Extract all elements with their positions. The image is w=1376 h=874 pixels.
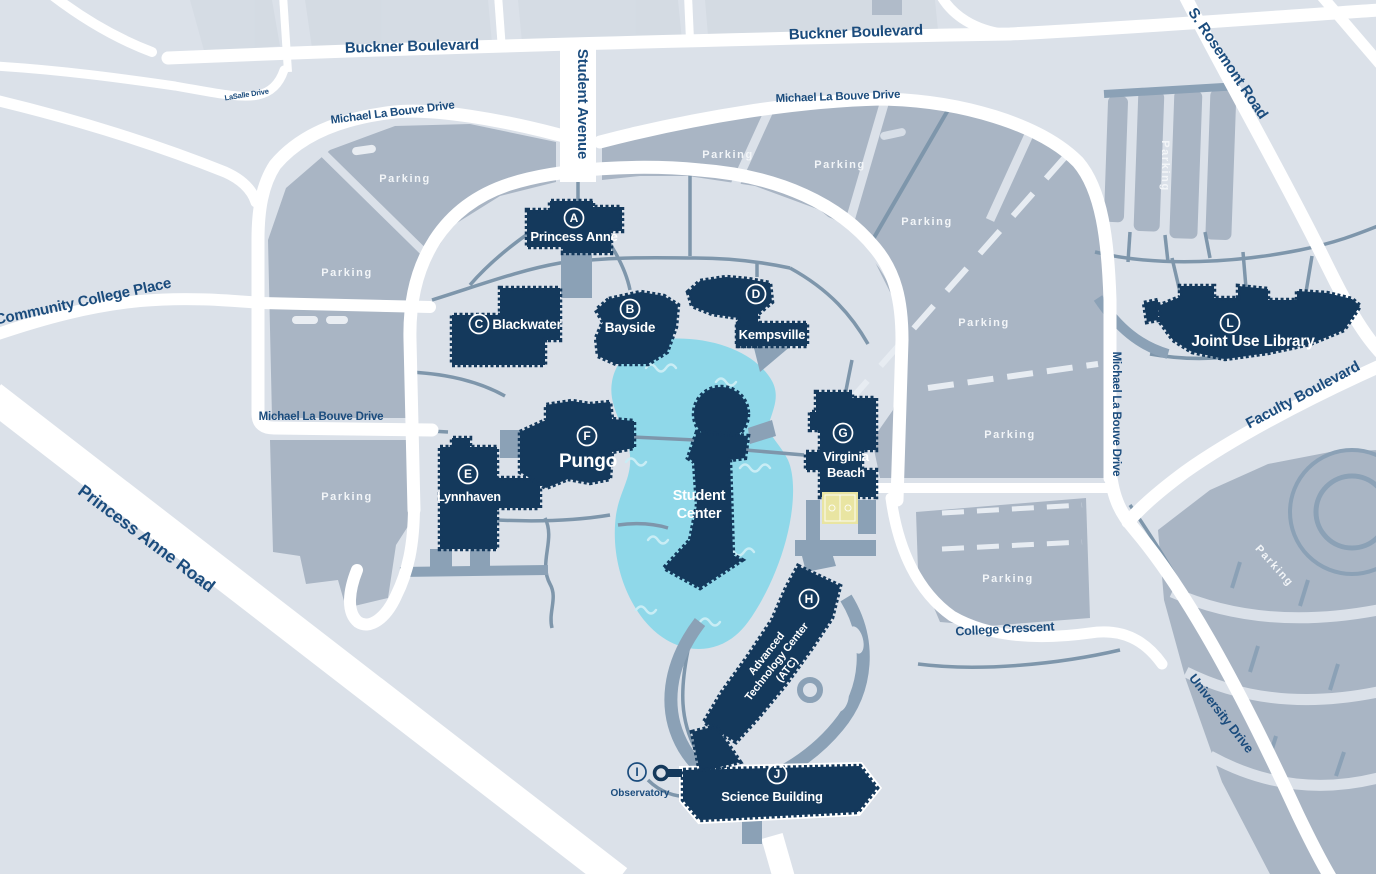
label-buckner-west: Buckner Boulevard	[345, 36, 480, 57]
svg-text:Virginia: Virginia	[823, 449, 870, 464]
label-parking: Parking	[1159, 140, 1171, 192]
road-minor-vertical-2	[498, 0, 502, 50]
letter-h: H	[805, 592, 814, 606]
letter-e: E	[464, 467, 472, 481]
label-parking: Parking	[702, 149, 754, 161]
svg-text:Center: Center	[677, 506, 722, 522]
campus-map-canvas: Buckner Boulevard Buckner Boulevard Stud…	[0, 0, 1376, 874]
letter-i: I	[635, 765, 638, 779]
road-minor-vertical-1	[283, 0, 288, 72]
svg-text:Student: Student	[673, 488, 726, 504]
label-parking: Parking	[321, 491, 373, 503]
label-parking: Parking	[982, 573, 1034, 585]
letter-d: D	[752, 287, 761, 301]
label-student-avenue: Student Avenue	[574, 49, 591, 159]
road-science-south	[772, 836, 784, 874]
label-parking: Parking	[901, 216, 953, 228]
letter-j: J	[774, 767, 781, 781]
label-parking: Parking	[984, 429, 1036, 441]
label-mlb-vertical: Michael La Bouve Drive	[1110, 352, 1122, 477]
svg-text:Lynnhaven: Lynnhaven	[437, 490, 501, 504]
recreation-courts	[822, 492, 858, 524]
campus-map: Buckner Boulevard Buckner Boulevard Stud…	[0, 0, 1376, 874]
road-minor-vertical-3	[688, 0, 690, 40]
label-parking: Parking	[814, 159, 866, 171]
label-mlb-horizontal: Michael La Bouve Drive	[259, 411, 384, 423]
label-parking: Parking	[321, 267, 373, 279]
svg-text:Bayside: Bayside	[605, 320, 656, 335]
svg-text:Beach: Beach	[827, 465, 865, 480]
letter-c: C	[475, 317, 484, 331]
letter-g: G	[838, 426, 847, 440]
letter-f: F	[583, 429, 590, 443]
svg-text:Kempsville: Kempsville	[739, 327, 806, 342]
svg-text:Princess Anne: Princess Anne	[530, 229, 617, 244]
svg-text:Observatory: Observatory	[611, 788, 670, 799]
svg-text:Blackwater: Blackwater	[492, 317, 562, 332]
svg-text:Joint Use Library: Joint Use Library	[1191, 333, 1315, 350]
label-parking: Parking	[379, 173, 431, 185]
letter-l: L	[1226, 316, 1233, 330]
letter-b: B	[626, 302, 635, 316]
letter-a: A	[570, 211, 579, 225]
svg-text:Pungo: Pungo	[559, 451, 617, 472]
svg-text:Science Building: Science Building	[721, 789, 823, 804]
label-parking: Parking	[958, 317, 1010, 329]
